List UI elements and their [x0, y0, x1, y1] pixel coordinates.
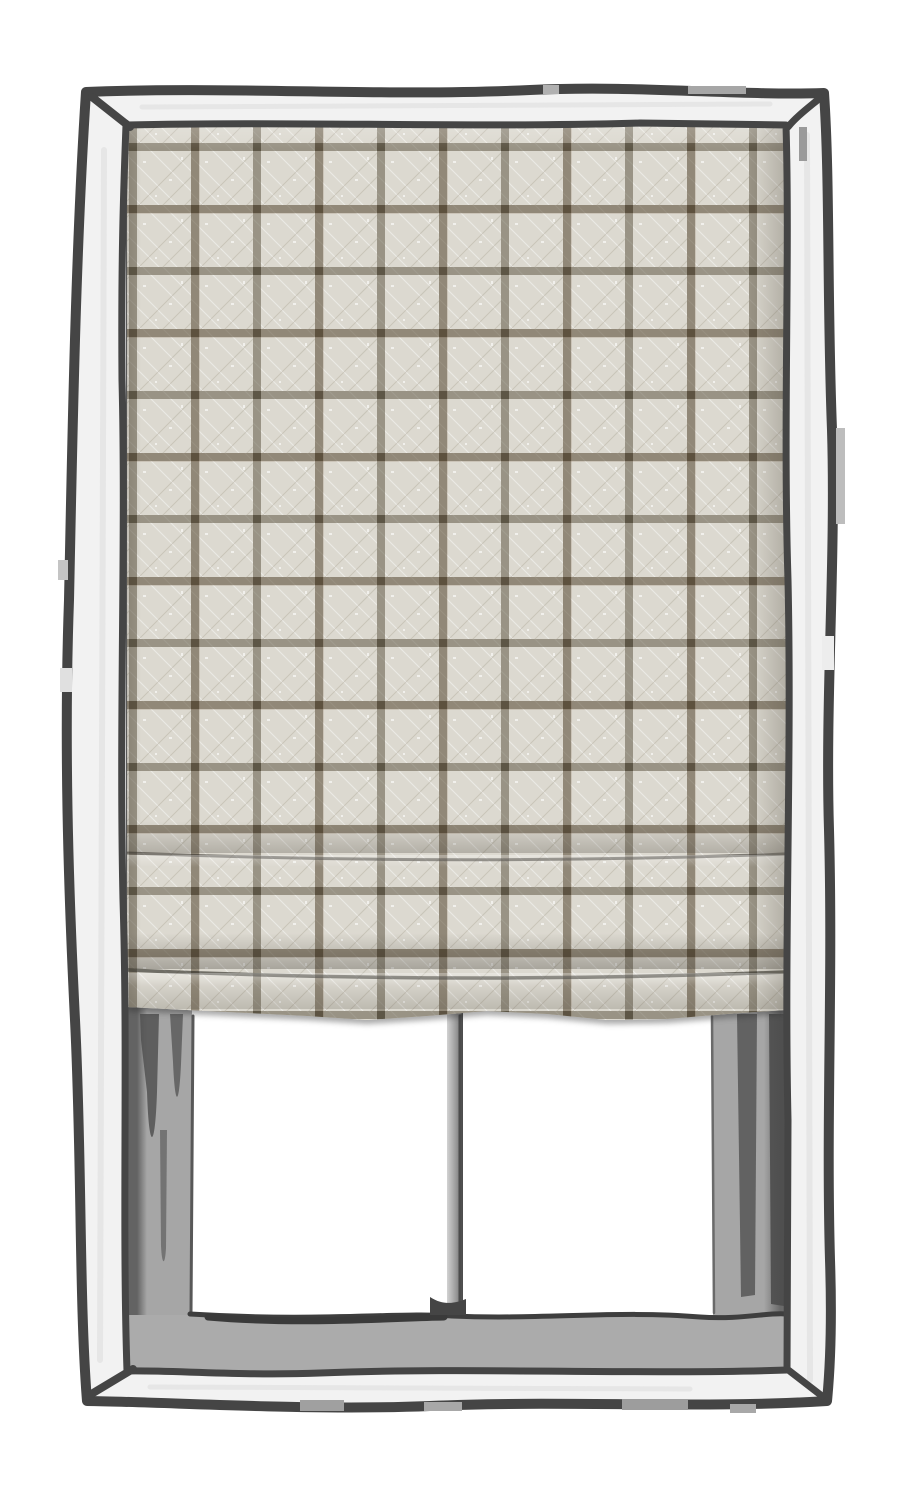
- roman-shade: [127, 123, 786, 1023]
- window-sill: [125, 1315, 788, 1372]
- product-illustration: [0, 0, 900, 1500]
- roman-shade-wrap: [127, 123, 786, 1023]
- plaid-fabric: [127, 123, 786, 1023]
